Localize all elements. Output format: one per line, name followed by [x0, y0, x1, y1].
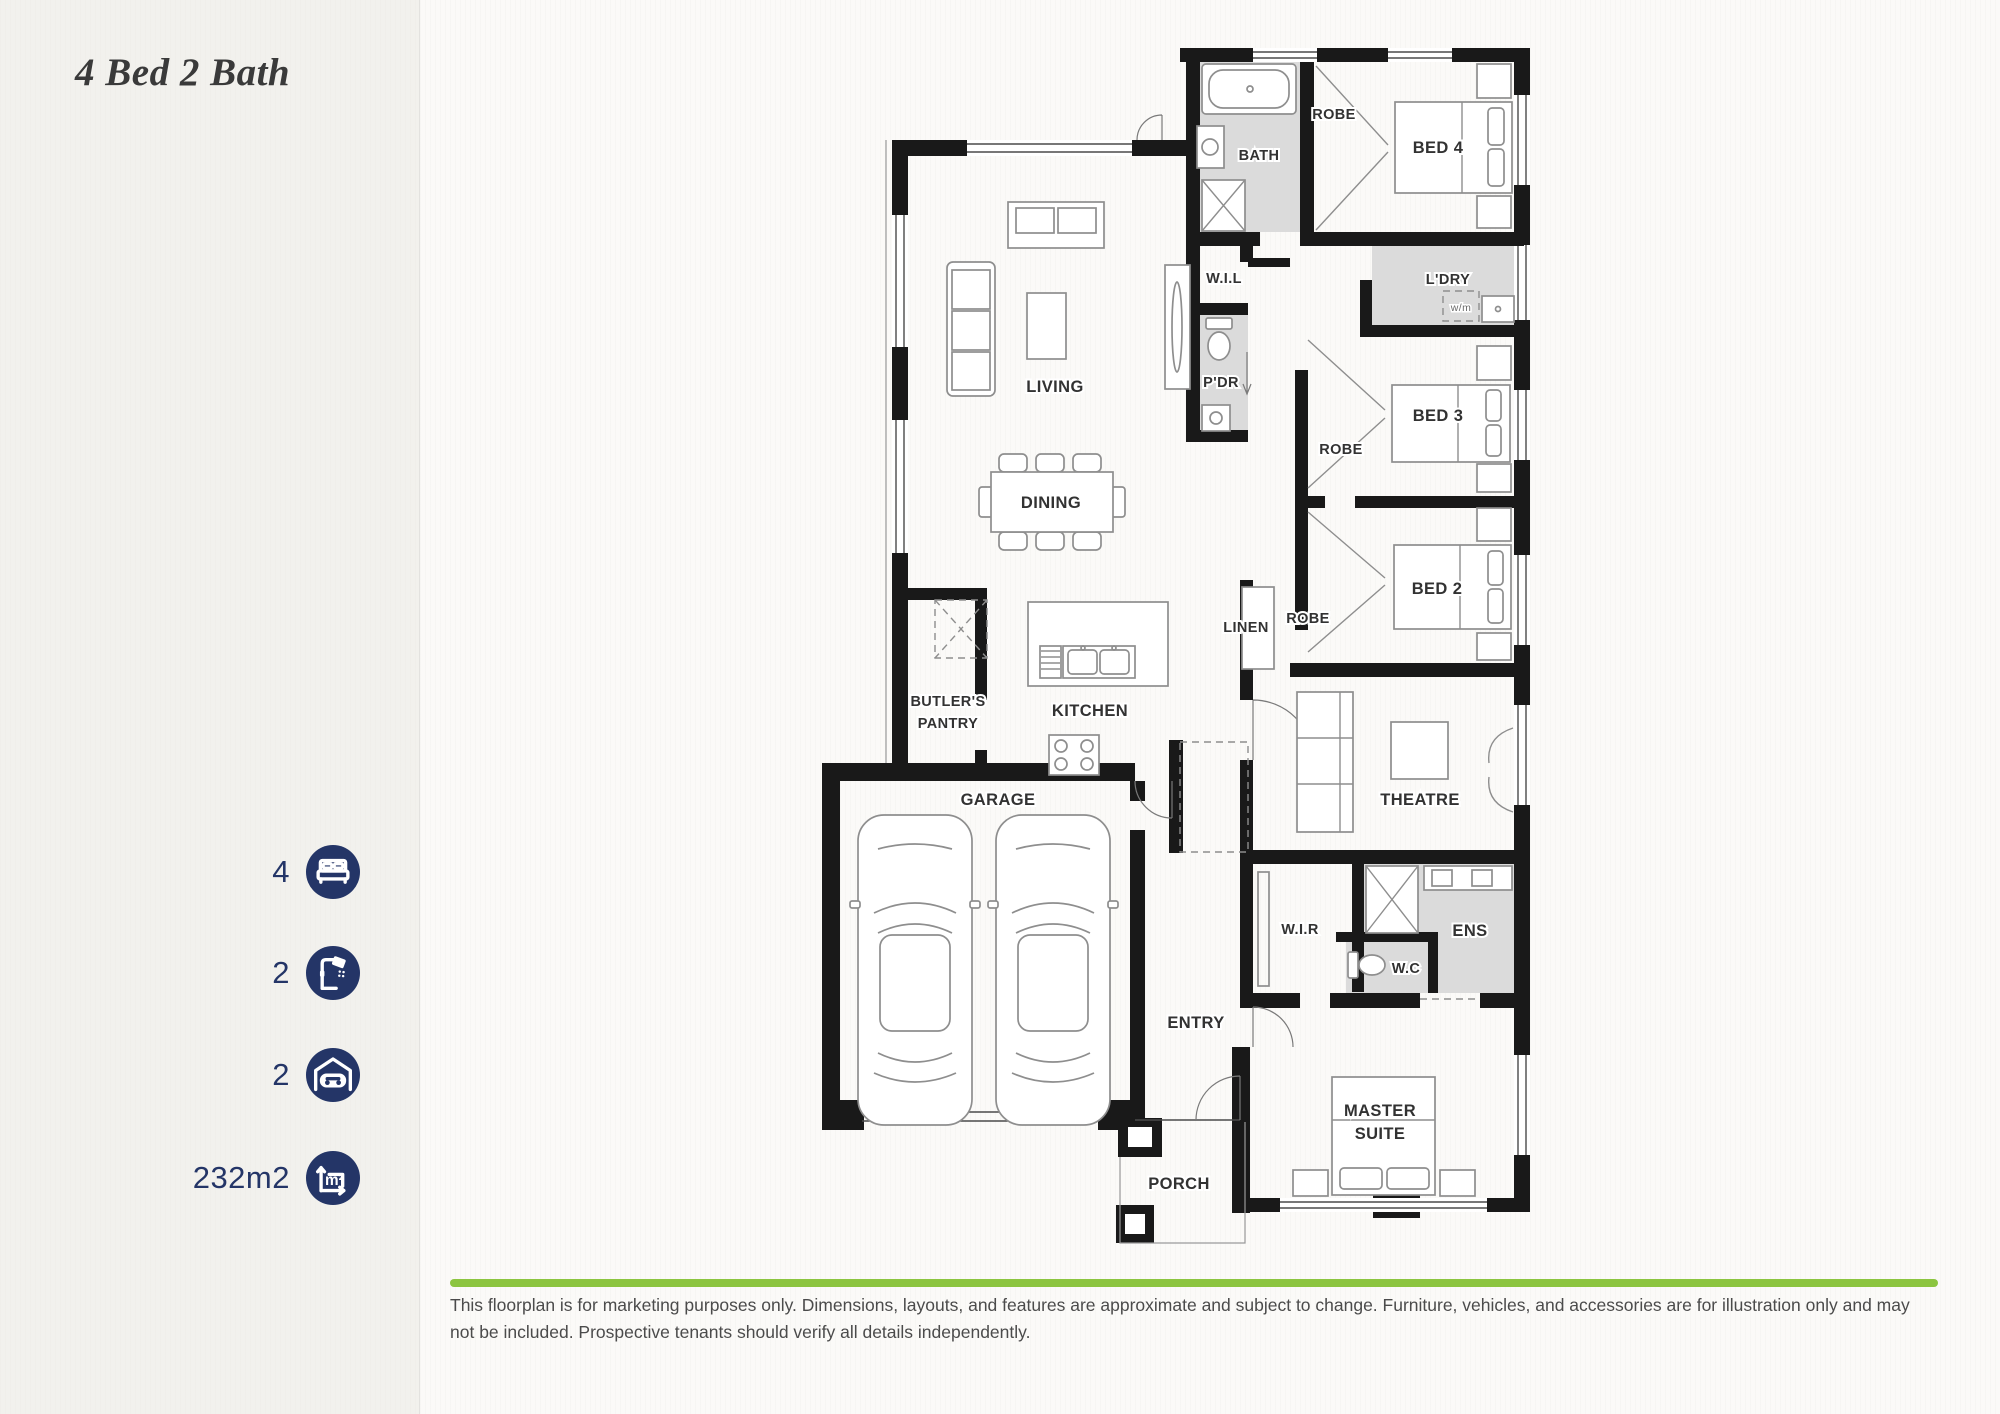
room-label-linen: LINEN	[1223, 620, 1269, 636]
room-label-bed4: BED 4	[1413, 139, 1464, 157]
car-icon	[306, 1048, 360, 1102]
room-label-pdr: P'DR	[1203, 375, 1239, 391]
room-label-ldry: L'DRY	[1426, 272, 1470, 288]
room-label-theatre: THEATRE	[1380, 791, 1460, 809]
area-value: 232m2	[193, 1160, 290, 1196]
room-label-living: LIVING	[1026, 378, 1083, 396]
shower-icon	[306, 946, 360, 1000]
room-label-wir: W.I.R	[1281, 922, 1319, 938]
room-label-butlers-1: BUTLER'S	[910, 694, 985, 710]
room-label-master-1: MASTER	[1344, 1102, 1416, 1120]
appliance-label-wm: w/m	[1450, 302, 1471, 314]
logo: essence homes	[0, 1270, 420, 1390]
svg-text:m²: m²	[325, 1172, 344, 1189]
room-label-porch: PORCH	[1148, 1175, 1210, 1193]
room-label-dining: DINING	[1021, 494, 1081, 512]
cars-count: 2	[272, 1057, 290, 1093]
disclaimer-line-1: This floorplan is for marketing purposes…	[450, 1292, 1970, 1319]
beds-count: 4	[272, 854, 290, 890]
car-1	[850, 815, 980, 1125]
page-title: 4 Bed 2 Bath	[75, 50, 405, 95]
baths-count: 2	[272, 955, 290, 991]
stat-cars: 2	[120, 1048, 360, 1102]
bed-icon	[306, 845, 360, 899]
room-label-robe-bed3: ROBE	[1319, 442, 1363, 458]
room-label-bed3: BED 3	[1413, 407, 1464, 425]
robe-doors	[1308, 66, 1388, 652]
car-2	[988, 815, 1118, 1125]
footer-divider	[450, 1279, 1938, 1287]
room-label-bed2: BED 2	[1412, 580, 1463, 598]
room-label-robe-bed2: ROBE	[1286, 611, 1330, 627]
room-label-wil: W.I.L	[1206, 271, 1242, 287]
room-label-entry: ENTRY	[1167, 1014, 1224, 1032]
room-label-butlers-2: PANTRY	[918, 716, 978, 732]
room-label-ens: ENS	[1452, 922, 1487, 940]
room-label-master-2: SUITE	[1355, 1125, 1406, 1143]
stat-area: 232m2 m²	[120, 1151, 360, 1205]
area-icon: m²	[306, 1151, 360, 1205]
disclaimer-line-2: not be included. Prospective tenants sho…	[450, 1319, 1970, 1346]
disclaimer: This floorplan is for marketing purposes…	[450, 1292, 1970, 1346]
room-label-bath: BATH	[1239, 148, 1280, 164]
stat-baths: 2	[120, 946, 360, 1000]
page: 4 Bed 2 Bath 4 2	[0, 0, 2000, 1414]
hall-dashed-outline	[1180, 742, 1248, 852]
room-label-garage: GARAGE	[961, 791, 1036, 809]
floorplan: BATH ROBE BED 4 W.I.L L'DRY w/m P'DR BED…	[615, 20, 1555, 1255]
room-label-robe-bed4: ROBE	[1312, 107, 1356, 123]
room-label-kitchen: KITCHEN	[1052, 702, 1128, 720]
stat-beds: 4	[120, 845, 360, 899]
room-label-wc: W.C	[1392, 961, 1421, 977]
sidebar: 4 Bed 2 Bath 4 2	[0, 0, 420, 1414]
